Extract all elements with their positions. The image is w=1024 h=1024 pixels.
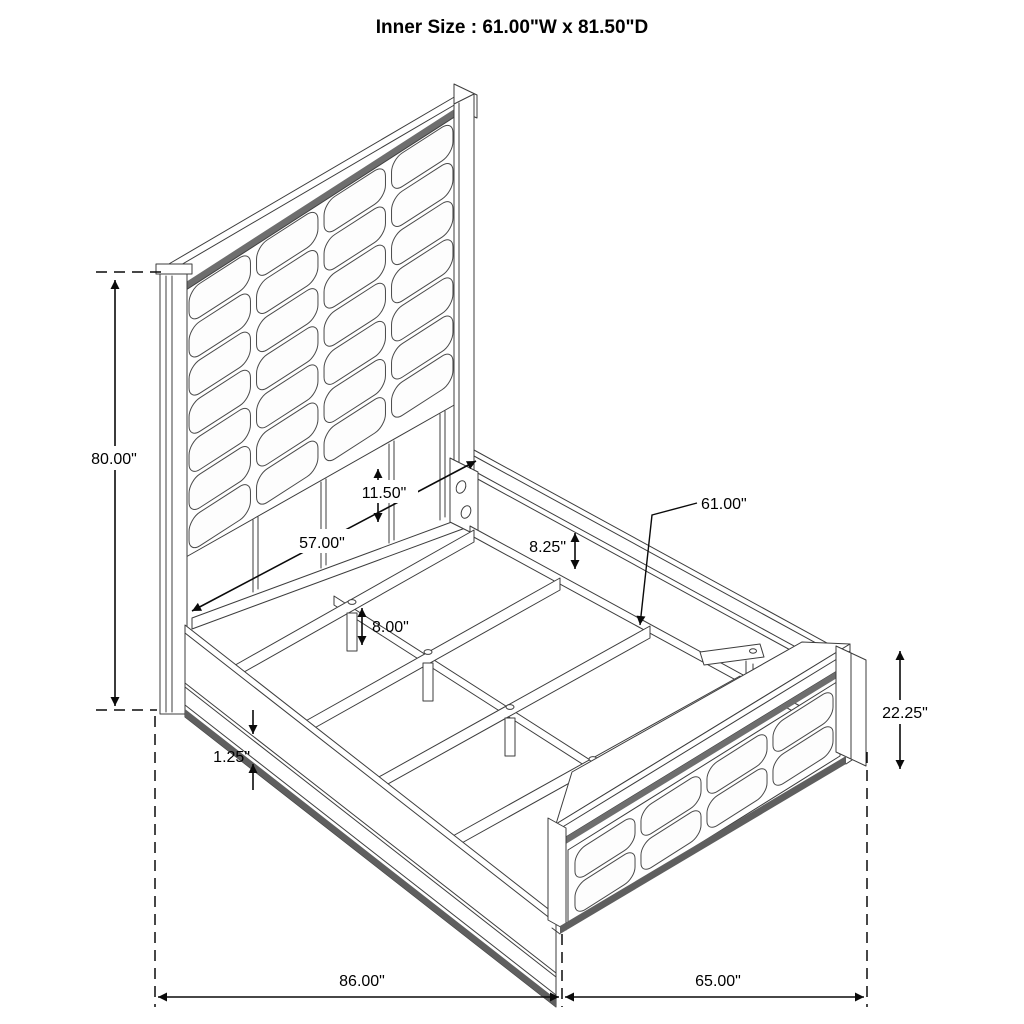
dim-label-rail-lip: 1.25" [213,749,250,766]
dim-label-slat-callout: 61.00" [701,496,747,513]
dim-label-headboard-height: 80.00" [91,451,137,468]
center-leg [505,718,515,756]
page-title: Inner Size : 61.00"W x 81.50"D [376,17,649,38]
dim-label-overall-width: 65.00" [695,973,741,990]
dim-label-inner-width: 57.00" [299,535,345,552]
background [0,0,1024,1024]
dim-label-leg-height: 8.00" [372,619,409,636]
headboard-near-post-cap [156,264,192,274]
dim-label-headboard-gap: 11.50" [362,485,407,502]
rail-bracket [450,458,478,536]
footboard-near-post [548,818,566,930]
center-leg [347,613,357,651]
diagram-canvas: 80.00" 57.00" 11.50" 8.25" 61.00" 8.00" [0,0,1024,1024]
dim-label-rail-depth: 8.25" [529,539,566,556]
slat-screw [506,705,514,710]
bed-dimension-diagram: 80.00" 57.00" 11.50" 8.25" 61.00" 8.00" [0,0,1024,1024]
dim-label-footboard-height: 22.25" [882,705,928,722]
dim-label-overall-depth: 86.00" [339,973,385,990]
headboard-near-post [160,274,187,714]
center-leg [423,663,433,701]
slat-screw [424,650,432,655]
slat-screw [348,600,356,605]
